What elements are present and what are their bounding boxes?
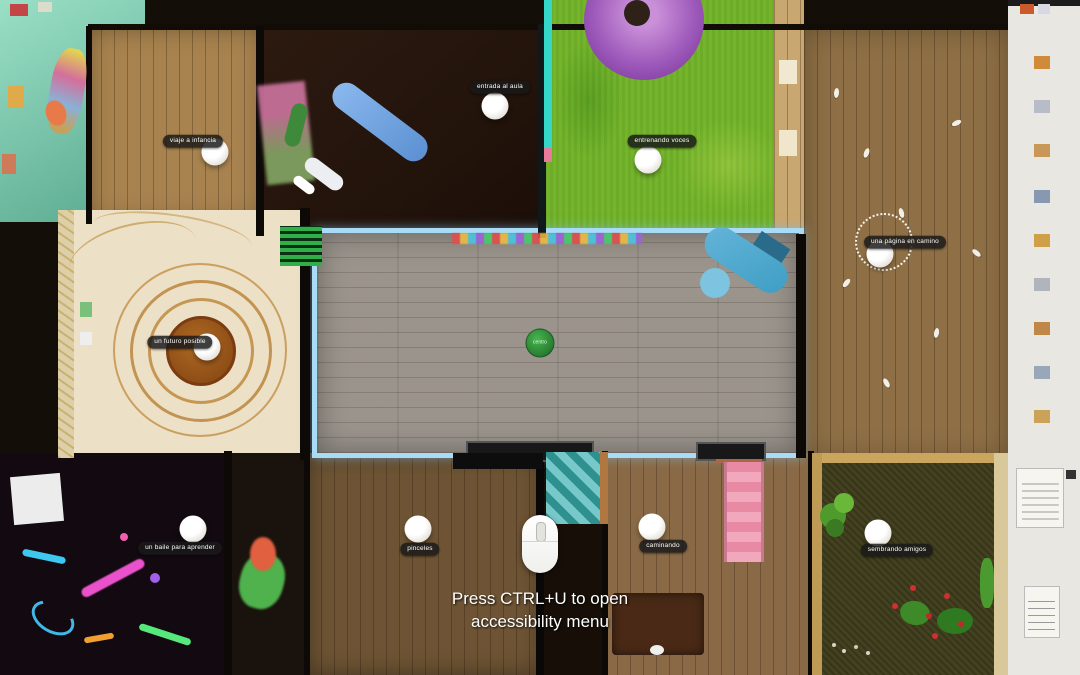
flower-bush [937, 608, 973, 634]
waypoint-label-pinceles[interactable]: pinceles [400, 543, 439, 556]
feather [971, 248, 982, 258]
bed-headboard [600, 452, 608, 524]
mouse-button-split [522, 541, 558, 542]
room-wood-infancia[interactable] [88, 28, 264, 222]
red-flower [892, 603, 898, 609]
gallery-picture [1034, 100, 1050, 113]
wall-poster [38, 2, 52, 12]
wall-seam [224, 451, 232, 675]
wall-seam [86, 26, 92, 224]
center-badge[interactable]: centro [526, 329, 555, 358]
waypoint-dot-un-baile-para-aprender[interactable] [180, 516, 207, 543]
gallery-picture [1034, 56, 1050, 69]
waypoint-dot-pinceles[interactable] [405, 516, 432, 543]
room-wood-pinceles[interactable] [308, 453, 542, 675]
wood-frame-right [994, 453, 1008, 675]
waypoint-label-entrenando-voces[interactable]: entrenando voces [628, 135, 697, 148]
gallery-picture [1034, 366, 1050, 379]
neon-dot-pink [120, 533, 128, 541]
tall-plant [980, 558, 994, 608]
accessibility-hint: Press CTRL+U to open accessibility menu [380, 588, 700, 634]
gallery-picture [1034, 234, 1050, 247]
room-dark-studio[interactable] [262, 28, 544, 235]
neon-splash-orange [84, 632, 115, 643]
room-art-spiral[interactable] [58, 210, 306, 458]
pink-towel [724, 462, 764, 562]
pinned-paper [779, 60, 797, 84]
feather [882, 377, 891, 388]
room-neon-dance[interactable] [0, 453, 230, 675]
waypoint-label-un-baile-para-aprender[interactable]: un baile para aprender [138, 542, 222, 555]
room-paint-splash[interactable] [230, 453, 308, 675]
room-moss-garden[interactable] [812, 453, 1008, 675]
red-flower [910, 585, 916, 591]
white-pebbles [832, 643, 836, 647]
small-card [80, 332, 92, 345]
neon-splash-green [138, 623, 192, 646]
potted-plant [834, 493, 854, 513]
wall-graffiti [452, 233, 642, 244]
info-poster [1024, 586, 1060, 638]
room-green-garden[interactable] [544, 0, 774, 238]
waypoint-label-viaje-a-infancia[interactable]: viaje a infancia [163, 135, 223, 148]
giant-blue-brush [327, 77, 433, 167]
red-flower [932, 633, 938, 639]
wall-seam [304, 451, 310, 675]
blue-slide-end [700, 268, 730, 298]
orange-splash [250, 537, 276, 571]
gallery-picture [1034, 190, 1050, 203]
wood-frame-top [812, 453, 1008, 463]
gallery-picture [1034, 278, 1050, 291]
red-flower [958, 621, 964, 627]
waypoint-dot-entrenando-voces[interactable] [635, 147, 662, 174]
potted-plant [826, 519, 844, 537]
waypoint-label-una-pagina-en-camino[interactable]: una página en camino [864, 236, 946, 249]
wall-poster [2, 154, 16, 174]
corner-poster [1020, 4, 1034, 14]
small-frame [1066, 470, 1076, 479]
garden-side-wall [774, 0, 804, 236]
waypoint-label-sembrando-amigos[interactable]: sembrando amigos [861, 544, 933, 557]
wall-poster [10, 4, 28, 16]
waypoint-dot-caminando[interactable] [639, 514, 666, 541]
gallery-picture [1034, 144, 1050, 157]
tree-trunk [624, 0, 650, 26]
wall-poster [8, 86, 24, 108]
room-wood-caminando[interactable] [604, 453, 810, 675]
grass-light [674, 120, 774, 210]
accessibility-hint-line1: Press CTRL+U to open [380, 588, 700, 611]
waypoint-label-un-futuro-posible[interactable]: un futuro posible [147, 336, 212, 349]
wall-seam [796, 234, 806, 458]
mouse-icon [522, 515, 558, 573]
neon-splash-pink [80, 557, 147, 599]
gallery-wall [1008, 0, 1080, 675]
wood-frame-left [812, 453, 822, 675]
feather [862, 147, 870, 158]
waypoint-label-entrada-al-aula[interactable]: entrada al aula [470, 81, 530, 94]
corner-poster [1038, 4, 1050, 14]
mouse-wheel-icon [536, 522, 546, 542]
teal-wall-strip [544, 0, 552, 150]
waypoint-label-caminando[interactable]: caminando [639, 540, 687, 553]
virtual-space-viewport[interactable]: viaje a infancia entrada al aula entrena… [0, 0, 1080, 675]
pinned-paper [779, 130, 797, 156]
neon-splash-blue [22, 549, 66, 565]
feather [951, 119, 962, 128]
waypoint-dot-sembrando-amigos[interactable] [865, 520, 892, 547]
feather [841, 278, 851, 289]
feather [834, 88, 840, 98]
small-card [80, 302, 92, 317]
waypoint-dot-entrada-al-aula[interactable] [482, 93, 509, 120]
white-cup [650, 645, 664, 655]
gold-wall-strip [58, 210, 74, 458]
accessibility-hint-line2: accessibility menu [380, 611, 700, 634]
red-flower [926, 613, 932, 619]
gallery-picture [1034, 322, 1050, 335]
neon-dot-purple [150, 573, 160, 583]
checkered-blanket [546, 452, 604, 524]
feather [933, 328, 940, 339]
green-piano-keys [280, 226, 322, 266]
neon-arc-blue [26, 594, 81, 643]
red-flower [944, 593, 950, 599]
pink-wall-bit [544, 148, 552, 162]
info-poster [1016, 468, 1064, 528]
dark-piano [453, 453, 543, 469]
gallery-picture [1034, 410, 1050, 423]
projection-screen [10, 473, 64, 525]
